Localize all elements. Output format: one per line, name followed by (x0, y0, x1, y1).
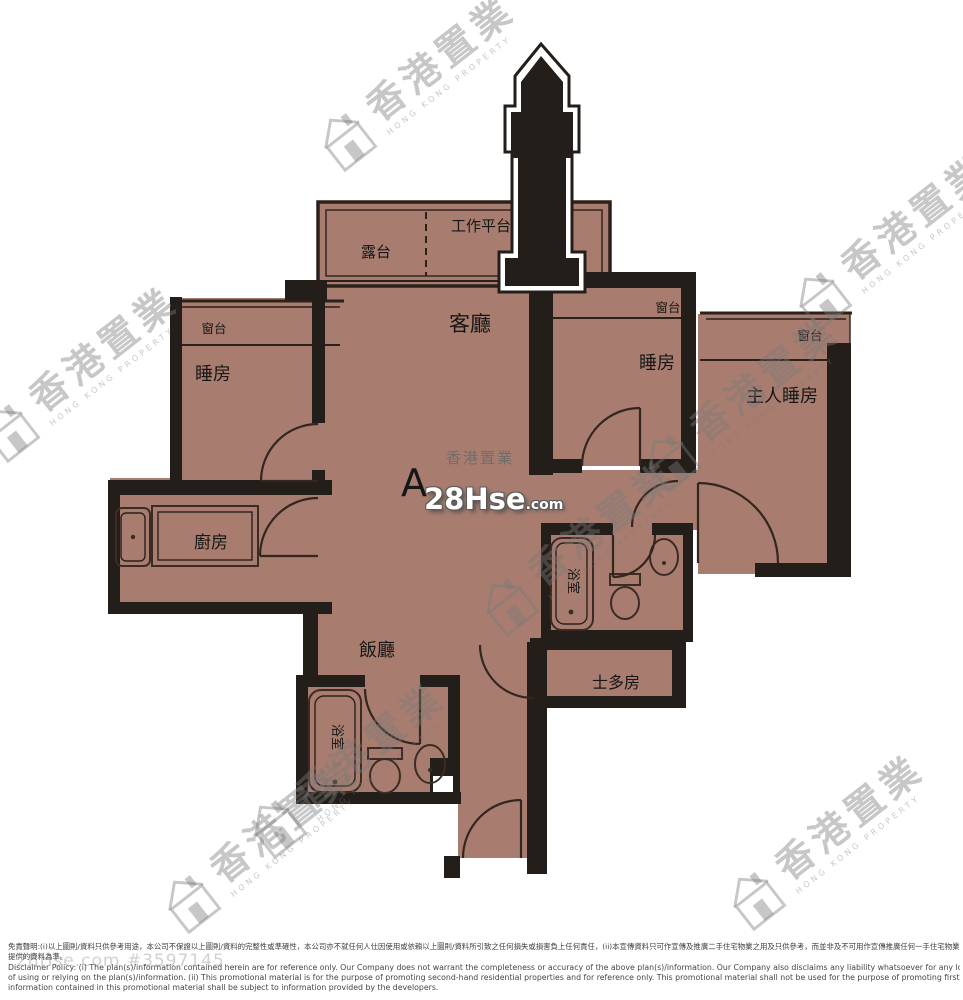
disclaimer-en-line2: of using or relying on the plan(s)/infor… (8, 973, 960, 982)
label-balcony: 露台 (361, 243, 391, 261)
28hse-tld: .com (526, 497, 564, 513)
label-bedroom-left: 睡房 (195, 364, 231, 385)
label-bay-window-right: 窗台 (797, 328, 822, 343)
label-living-room: 客廳 (449, 312, 491, 336)
label-bedroom-middle: 睡房 (639, 353, 675, 374)
28hse-logo: 28Hse.com (424, 482, 563, 516)
disclaimer-cn-line2: 提供的資料為準。 (8, 951, 960, 962)
label-bay-window-left: 窗台 (201, 321, 226, 336)
tower-shaft (499, 44, 585, 292)
label-master-bedroom: 主人睡房 (746, 386, 818, 407)
label-dining-room: 飯廳 (359, 640, 395, 661)
disclaimer-en-line3: information contained in this promotiona… (8, 983, 960, 992)
room-hall-floor (548, 470, 698, 530)
label-work-platform: 工作平台 (451, 217, 511, 235)
label-store-room: 士多房 (592, 673, 640, 692)
label-bay-window-middle: 窗台 (655, 300, 680, 315)
hkp-site-name: 香港置業 (446, 447, 514, 468)
floor-plan-page: 露台 工作平台 客廳 窗台 窗台 窗台 睡房 睡房 主人睡房 廚房 飯廳 浴室 … (0, 0, 963, 1000)
28hse-brand: 28Hse (424, 482, 526, 516)
disclaimer-en-line1: Disclaimer Policy: (i) The plan(s)/infor… (8, 963, 960, 972)
label-bathroom2: 浴室 (565, 568, 581, 594)
room-store-floor (530, 642, 684, 702)
label-bathroom1: 浴室 (329, 724, 345, 750)
label-kitchen: 廚房 (194, 532, 228, 553)
